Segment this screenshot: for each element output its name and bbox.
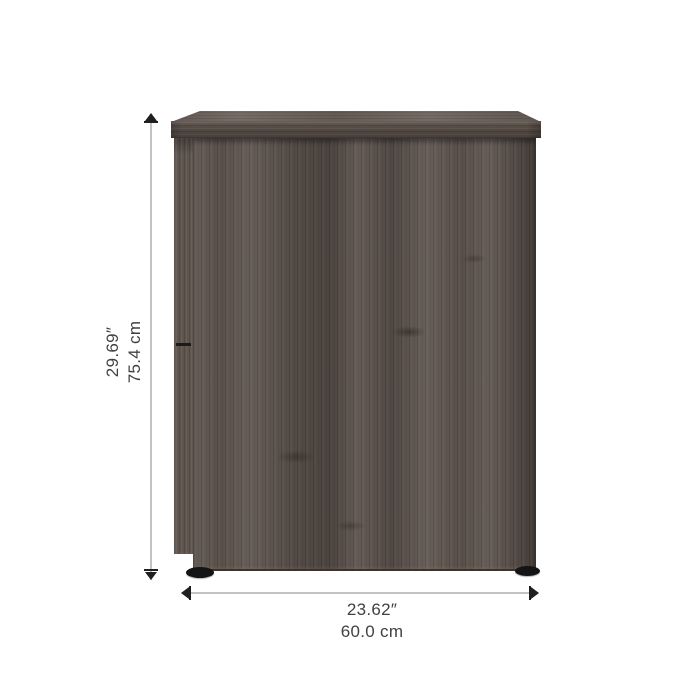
width-arrow-right-icon	[531, 587, 539, 599]
height-inches-text: 29.69″	[102, 287, 124, 417]
cabinet-left-side-panel	[174, 138, 194, 554]
height-arrow-top-bar	[144, 121, 158, 123]
height-arrow-bottom-icon	[145, 572, 157, 580]
height-arrow-top-icon	[145, 113, 157, 121]
side-panel-seam	[176, 343, 191, 346]
cabinet-front-panel	[193, 138, 536, 571]
cabinet-top-front-edge	[171, 121, 541, 138]
width-arrow-right-bar	[529, 586, 531, 600]
product-dimension-image: 29.69″ 75.4 cm 23.62″ 60.0 cm	[0, 0, 700, 700]
width-cm-text: 60.0 cm	[297, 621, 447, 643]
left-foot	[186, 567, 214, 578]
height-arrow-bottom-bar	[144, 569, 158, 571]
right-foot	[515, 566, 540, 576]
height-cm-text: 75.4 cm	[124, 287, 146, 417]
width-dimension-line	[183, 592, 538, 594]
width-dimension-label: 23.62″ 60.0 cm	[297, 599, 447, 643]
width-arrow-left-bar	[189, 586, 191, 600]
height-dimension-line	[150, 114, 152, 580]
width-inches-text: 23.62″	[297, 599, 447, 621]
height-dimension-label: 29.69″ 75.4 cm	[102, 287, 146, 417]
width-arrow-left-icon	[181, 587, 189, 599]
